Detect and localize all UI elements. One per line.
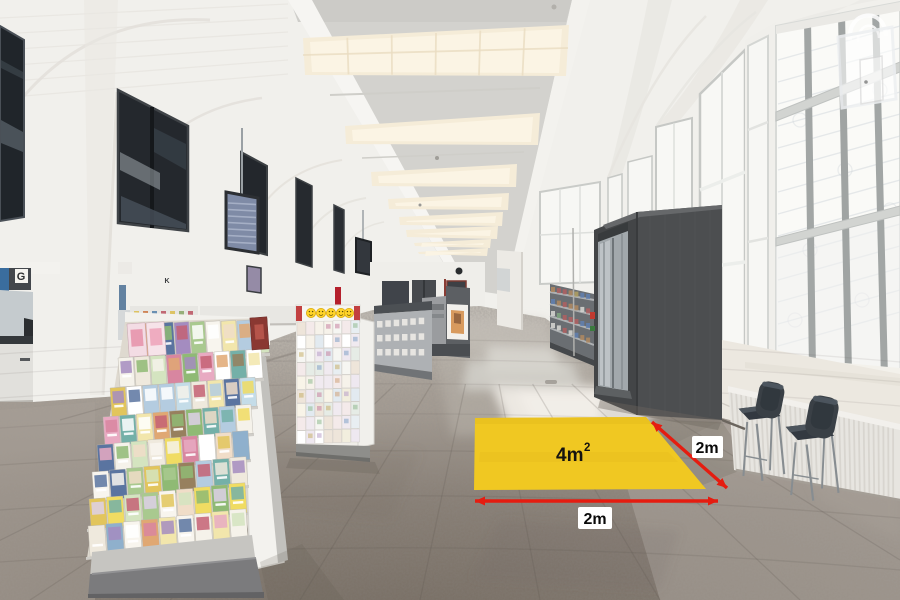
svg-text:2: 2	[584, 442, 590, 454]
svg-text:2m: 2m	[695, 440, 718, 457]
svg-text:K: K	[164, 278, 169, 285]
svg-text:4m: 4m	[556, 445, 583, 466]
svg-text:G: G	[17, 271, 26, 283]
svg-text:2m: 2m	[583, 511, 606, 528]
